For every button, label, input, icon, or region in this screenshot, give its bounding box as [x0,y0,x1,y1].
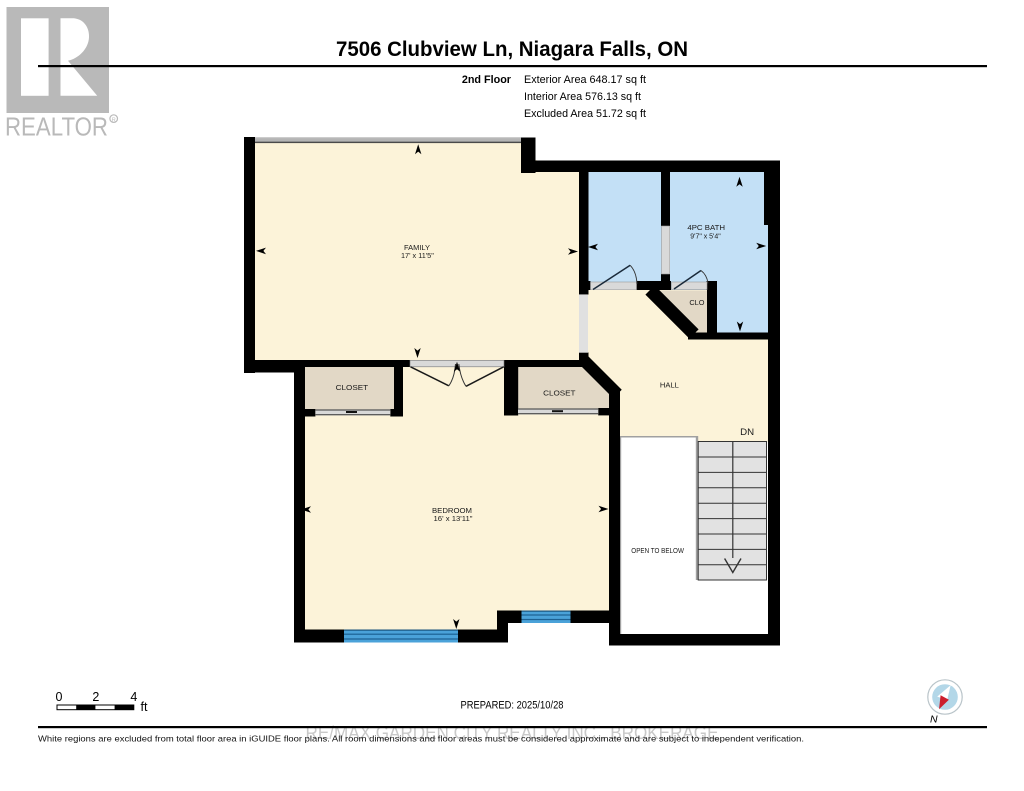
svg-text:4PC BATH: 4PC BATH [687,223,725,232]
svg-text:CLO: CLO [689,298,704,307]
svg-text:REALTOR: REALTOR [5,114,108,142]
svg-text:Interior Area 576.13 sq ft: Interior Area 576.13 sq ft [524,91,641,103]
svg-text:White regions are excluded fro: White regions are excluded from total fl… [38,734,804,744]
svg-text:2nd Floor: 2nd Floor [462,74,512,86]
svg-text:DN: DN [740,427,754,438]
svg-text:4: 4 [130,690,137,704]
svg-text:PREPARED: 2025/10/28: PREPARED: 2025/10/28 [461,700,564,712]
svg-text:16' x 13'11": 16' x 13'11" [434,514,473,523]
svg-text:HALL: HALL [660,381,680,390]
svg-text:N: N [930,713,938,725]
svg-text:Exterior Area 648.17 sq ft: Exterior Area 648.17 sq ft [524,74,646,86]
svg-text:CLOSET: CLOSET [543,388,576,397]
svg-text:Excluded Area 51.72 sq ft: Excluded Area 51.72 sq ft [524,108,646,120]
svg-text:2: 2 [92,690,99,704]
svg-text:R: R [112,117,116,123]
svg-text:0: 0 [56,690,63,704]
svg-text:7506 Clubview Ln, Niagara Fall: 7506 Clubview Ln, Niagara Falls, ON [336,37,688,61]
svg-text:CLOSET: CLOSET [336,383,369,392]
svg-text:OPEN TO BELOW: OPEN TO BELOW [631,546,684,555]
svg-text:17' x 11'5": 17' x 11'5" [401,251,434,260]
svg-text:9'7" x 5'4": 9'7" x 5'4" [690,232,721,241]
svg-text:ft: ft [141,700,148,714]
